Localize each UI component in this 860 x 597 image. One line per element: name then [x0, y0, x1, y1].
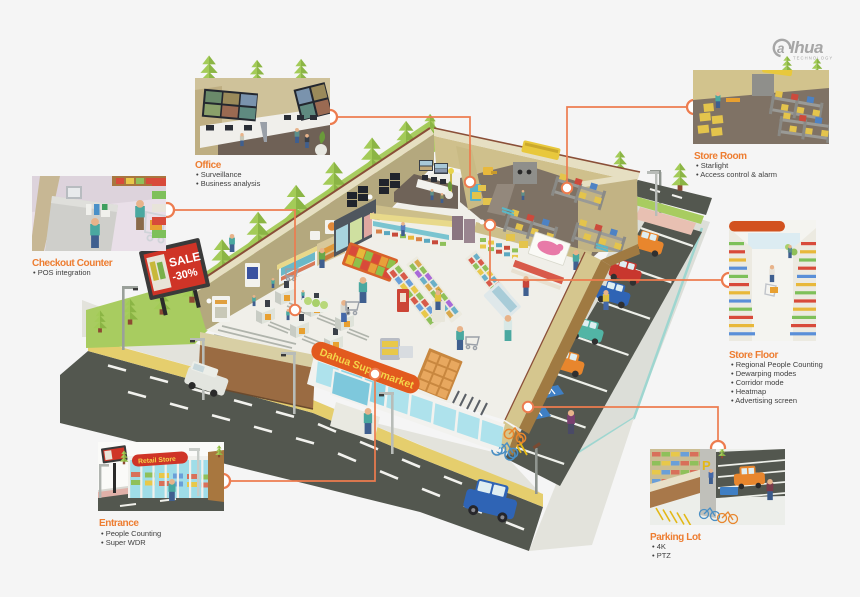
- svg-text:• Access control & alarm: • Access control & alarm: [696, 170, 777, 179]
- svg-text:• Dewarping modes: • Dewarping modes: [731, 369, 796, 378]
- svg-text:• Surveillance: • Surveillance: [196, 170, 242, 179]
- svg-text:• PTZ: • PTZ: [652, 551, 671, 560]
- svg-text:• Starlight: • Starlight: [696, 161, 729, 170]
- svg-text:• Heatmap: • Heatmap: [731, 387, 766, 396]
- svg-text:Entrance: Entrance: [99, 518, 139, 529]
- svg-text:• Advertising screen: • Advertising screen: [731, 396, 797, 405]
- svg-text:• 4K: • 4K: [652, 542, 666, 551]
- svg-text:• Super WDR: • Super WDR: [101, 538, 146, 547]
- svg-text:a: a: [777, 41, 785, 56]
- svg-text:• Corridor mode: • Corridor mode: [731, 378, 784, 387]
- svg-text:• POS integration: • POS integration: [33, 268, 91, 277]
- svg-text:• Business analysis: • Business analysis: [196, 179, 261, 188]
- svg-text:TECHNOLOGY: TECHNOLOGY: [793, 56, 833, 61]
- svg-text:• People Counting: • People Counting: [101, 529, 161, 538]
- svg-text:• Regional People Counting: • Regional People Counting: [731, 360, 823, 369]
- svg-text:lhua: lhua: [790, 38, 823, 57]
